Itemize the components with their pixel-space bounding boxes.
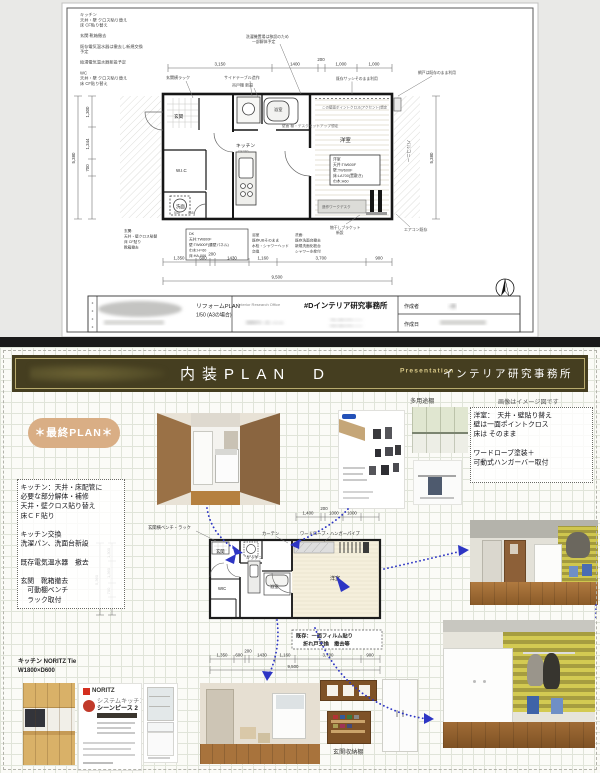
text-line	[83, 742, 135, 744]
wardrobe	[443, 648, 513, 724]
shoe	[333, 715, 338, 719]
svg-text:○田: ○田	[448, 304, 456, 310]
work-line: 可動棚ベンチ	[20, 586, 125, 595]
svg-text:浴室: 浴室	[274, 106, 282, 113]
svg-text:洗面: 洗面	[176, 203, 185, 210]
text-line	[83, 748, 131, 750]
svg-text:1000: 1000	[329, 511, 339, 516]
svg-text:造作ワークデスク: 造作ワークデスク	[322, 204, 351, 209]
svg-text:玄関:: 玄関:	[124, 228, 132, 233]
svg-text:W.I.C: W.I.C	[176, 168, 187, 173]
svg-text:玄関: 玄関	[216, 548, 225, 555]
svg-text:700: 700	[85, 164, 90, 172]
svg-text:1,344: 1,344	[85, 138, 90, 150]
plan-bottom-leaders: 玄関横ベンチ・ラック カーテン ワードローブ・ハンガーパイプ	[148, 524, 361, 543]
cabinet-seams	[412, 407, 468, 453]
svg-text:200: 200	[244, 649, 252, 654]
photo-shoe-rack	[327, 711, 371, 744]
blue-cloth	[569, 566, 578, 577]
towel	[428, 477, 442, 495]
floor-planks	[470, 582, 598, 605]
svg-text:交換: 交換	[252, 249, 260, 254]
company-logo-blurred	[30, 364, 165, 383]
existing-note-box: 既存：一面フィルム貼り 折れ戸交換 撤去等	[292, 630, 382, 649]
svg-text:サイドテーブル造作: サイドテーブル造作	[224, 74, 260, 80]
work-line	[20, 521, 125, 530]
work-line: 天井・壁クロス貼り替え	[20, 502, 125, 511]
text-line	[343, 479, 367, 481]
shoe	[347, 724, 352, 728]
svg-text:洗面:: 洗面:	[295, 232, 303, 237]
svg-text:1,160: 1,160	[280, 653, 292, 658]
floor	[191, 491, 240, 505]
svg-text:200: 200	[317, 57, 325, 62]
svg-text:洋室: 洋室	[330, 575, 340, 582]
blue-cloth	[551, 698, 563, 714]
page-title: 内装PLAN D	[180, 363, 331, 384]
room-note-line: ワードローブ塗装＋	[473, 449, 593, 458]
floor-planks	[200, 744, 320, 764]
handle	[402, 710, 404, 717]
svg-text:1,400: 1,400	[303, 511, 315, 516]
work-line	[20, 549, 125, 558]
shoe	[340, 724, 345, 728]
svg-text:FAX.050-474-○○○○: FAX.050-474-○○○○	[330, 324, 363, 328]
text-line	[83, 762, 113, 764]
shelf-opening	[327, 685, 338, 696]
svg-text:予定: 予定	[80, 48, 88, 55]
svg-text:床 CF貼り替え: 床 CF貼り替え	[80, 22, 108, 29]
svg-text:洋室: 洋室	[340, 136, 351, 144]
dk-spec-box: DK 天井:TW600F 壁:TW600F(腰壁パネル) 巾木:H=60 床:H…	[186, 229, 248, 260]
door	[193, 431, 213, 485]
shoe	[333, 724, 338, 728]
brand-mark	[83, 688, 90, 695]
svg-text:壁面 棚・デスクセットアップ想定: 壁面 棚・デスクセットアップ想定	[282, 123, 339, 128]
svg-text:一部解体予定: 一部解体予定	[252, 39, 275, 44]
shelf-opening	[343, 685, 354, 696]
brand-name: NORITZ	[92, 687, 115, 694]
svg-text:既存UBそのまま: 既存UBそのまま	[252, 238, 280, 243]
svg-text:既存：一面フィルム貼り: 既存：一面フィルム貼り	[296, 632, 353, 640]
svg-text:3,150: 3,150	[215, 62, 227, 67]
shoe	[354, 715, 359, 719]
svg-text:巾木:H=60: 巾木:H=60	[189, 248, 206, 253]
hook-item	[393, 463, 399, 472]
kitchen-spec-line: W1800×D600	[18, 666, 76, 675]
svg-text:1000: 1000	[347, 511, 357, 516]
svg-text:天井:TW600F: 天井:TW600F	[333, 162, 357, 167]
hook-item	[385, 427, 392, 439]
svg-text:1/50 (A3の場合): 1/50 (A3の場合)	[196, 312, 232, 319]
svg-text:TEL.050-474-○○○○: TEL.050-474-○○○○	[330, 318, 362, 322]
hook-item	[369, 466, 376, 475]
svg-text:1,300: 1,300	[85, 106, 90, 118]
photo-kitchen-cabinets	[412, 407, 468, 453]
work-line: キッチン交換	[20, 530, 125, 539]
svg-text:作成者: 作成者	[404, 303, 419, 310]
plan-bottom-dim-labels: 1,400 200 1000 1000 1,350 600 200 1430 1…	[94, 506, 374, 669]
svg-text:天井:TW600F: 天井:TW600F	[189, 237, 212, 242]
svg-text:1430: 1430	[227, 256, 237, 261]
basin	[147, 722, 174, 732]
hook-item	[373, 429, 381, 439]
wardrobe	[534, 544, 562, 586]
interior-plan-sheet: 内装PLAN D Presentation インテリア研究事務所 画像はイメージ…	[0, 347, 600, 773]
photo-wardrobe	[382, 679, 418, 752]
catalog-logo	[342, 414, 356, 419]
left-wall	[157, 413, 191, 505]
text-line	[83, 754, 135, 756]
svg-text:9,500: 9,500	[288, 664, 300, 669]
shoe	[347, 715, 352, 719]
text-line	[343, 467, 365, 469]
reform-plan-sheet: キッチン 天井・壁 クロス貼り替え 床 CF貼り替え 玄関 靴箱撤去 既存電気温…	[0, 0, 600, 340]
svg-text:1,350: 1,350	[174, 256, 186, 261]
svg-text:玄関横ベンチ・ラック: 玄関横ベンチ・ラック	[148, 524, 191, 531]
svg-text:1,350: 1,350	[217, 653, 229, 658]
mirror-cabinet	[147, 687, 174, 721]
blue-cloth	[527, 696, 539, 714]
svg-text:玄関 靴箱撤去: 玄関 靴箱撤去	[80, 32, 106, 39]
door-seam	[399, 680, 400, 751]
svg-text:水栓・シャワーヘッド: 水栓・シャワーヘッド	[252, 243, 289, 248]
handle	[473, 680, 476, 683]
svg-text:545: 545	[174, 211, 180, 215]
bar	[420, 497, 454, 499]
room-note-line: 床は そのまま	[473, 430, 593, 439]
work-line: 必要な部分解体・補修	[20, 493, 125, 502]
counter-line	[412, 432, 468, 434]
svg-text:壁:TW600F(腰壁パネル): 壁:TW600F(腰壁パネル)	[189, 242, 229, 247]
svg-text:物干しブラケット: 物干しブラケット	[330, 225, 361, 230]
svg-text:Interior Research Office: Interior Research Office	[238, 302, 281, 307]
svg-text:キッチン: キッチン	[236, 143, 255, 149]
svg-text:CK240: CK240	[238, 150, 248, 154]
svg-text:吊戸棚 新設: 吊戸棚 新設	[232, 82, 253, 88]
text-line	[97, 732, 135, 734]
svg-text:この壁面ポイントクロス(アクセント)想定: この壁面ポイントクロス(アクセント)想定	[322, 105, 388, 110]
svg-text:天井・壁クロス貼替: 天井・壁クロス貼替	[124, 234, 157, 239]
shelf-line	[149, 696, 170, 697]
caption-line	[148, 757, 170, 759]
svg-text:1430: 1430	[257, 653, 267, 658]
svg-text:600: 600	[199, 256, 207, 261]
svg-text:5,380: 5,380	[71, 152, 76, 164]
svg-text:WC: WC	[80, 70, 87, 75]
catalog-shelf-label: 多用途棚	[410, 396, 434, 405]
svg-text:600: 600	[235, 653, 243, 658]
svg-text:靴箱撤去: 靴箱撤去	[124, 245, 139, 250]
text-line	[343, 491, 373, 493]
shelf-photo	[339, 419, 365, 441]
svg-text:既存電気温水器は撤去し新規交換: 既存電気温水器は撤去し新規交換	[80, 43, 144, 50]
svg-text:相模原市○○区○○3-1-8: 相模原市○○区○○3-1-8	[246, 320, 283, 325]
mirror	[276, 695, 304, 709]
photo-room-render-wardrobe	[443, 620, 595, 748]
photo-kitchen-wood	[23, 683, 75, 765]
photo-noritz-catalog: NORITZ システムキッチン シーンピース 2	[78, 683, 142, 771]
photo-vanity-catalog	[143, 683, 178, 763]
kitchen-spec-note: キッチン NORITZ Tie W1800×D600	[18, 657, 76, 675]
svg-text:新規洗面化粧台: 新規洗面化粧台	[295, 243, 321, 248]
work-line: ラック取付	[20, 596, 125, 605]
hook-item	[395, 445, 401, 455]
svg-text:バルコニー: バルコニー	[406, 140, 411, 163]
svg-text:床:LA700(置敷き): 床:LA700(置敷き)	[333, 173, 363, 178]
blue-cloth	[582, 564, 592, 576]
svg-text:リフォームPLAN: リフォームPLAN	[196, 303, 240, 310]
room-note-line: 洋室： 天井・壁貼り替え	[473, 411, 593, 420]
text-line	[343, 473, 363, 475]
photo-room-render-door	[470, 520, 598, 605]
photo-wall-shelf	[320, 680, 377, 701]
svg-text:給湯電気温水器新設予定: 給湯電気温水器新設予定	[80, 59, 126, 66]
svg-text:WIC: WIC	[218, 586, 226, 591]
work-line: 玄関 靴箱撤去	[20, 577, 125, 586]
svg-text:1,000: 1,000	[369, 62, 381, 67]
jacket	[566, 532, 590, 558]
svg-text:折れ戸交換 撤去等: 折れ戸交換 撤去等	[303, 640, 351, 648]
door	[206, 689, 234, 749]
svg-text:浴室: 浴室	[252, 232, 260, 237]
client-logo-blurred	[98, 301, 182, 317]
room-note-line: 可動式ハンガーバー取付	[473, 458, 593, 467]
door-window	[510, 544, 518, 554]
svg-text:床 CF貼り替え: 床 CF貼り替え	[80, 80, 108, 87]
handle	[483, 680, 486, 683]
svg-text:作成日: 作成日	[404, 321, 419, 328]
svg-text:エアコン既存: エアコン既存	[404, 227, 427, 232]
svg-text:洋室: 洋室	[333, 157, 341, 162]
svg-text:3,700: 3,700	[323, 653, 335, 658]
work-line: 洗濯パン、洗面台新設	[20, 539, 125, 548]
svg-text:キッチン: キッチン	[80, 12, 97, 17]
svg-text:床 CF貼り: 床 CF貼り	[124, 239, 141, 244]
text-line	[97, 722, 135, 724]
svg-text:カーテン: カーテン	[262, 531, 279, 537]
svg-text:巾木:H60: 巾木:H60	[333, 179, 349, 184]
final-plan-badge: ＊最終PLAN＊	[28, 418, 120, 448]
svg-text:1400: 1400	[290, 62, 300, 67]
sale-badge	[83, 700, 95, 712]
right-wall	[240, 413, 280, 505]
shelf-line	[149, 706, 170, 707]
svg-text:900: 900	[366, 653, 374, 658]
svg-text:900: 900	[375, 256, 383, 261]
room-note-line	[473, 439, 593, 448]
header-banner: 内装PLAN D Presentation インテリア研究事務所	[12, 355, 588, 392]
storage-box	[258, 733, 270, 743]
svg-text:1,160: 1,160	[258, 256, 270, 261]
svg-text:9,500: 9,500	[272, 275, 284, 280]
work-line	[20, 568, 125, 577]
svg-text:キッチン: キッチン	[246, 555, 263, 560]
cabinet	[147, 732, 174, 756]
hook-item	[381, 465, 389, 475]
shoe	[340, 715, 345, 719]
work-line: キッチン：天井・床配管に	[20, 483, 125, 492]
svg-text:200: 200	[320, 506, 328, 511]
photo-washroom-render	[200, 683, 320, 764]
svg-text:浴室: 浴室	[270, 583, 278, 590]
jacket	[543, 653, 560, 689]
svg-text:#Dインテリア研究事務所: #Dインテリア研究事務所	[304, 301, 388, 310]
kitchen-spec-line: キッチン NORITZ Tie	[18, 657, 76, 666]
svg-text:シャワー水栓付: シャワー水栓付	[295, 249, 321, 254]
svg-text:既存洗面台撤去: 既存洗面台撤去	[295, 238, 321, 243]
work-line: 既存電気温水器 撤去	[20, 558, 125, 567]
handle	[396, 710, 398, 717]
svg-text:壁:TW600F: 壁:TW600F	[333, 168, 353, 173]
shoe-shelf-label: 玄関収納棚	[333, 747, 363, 756]
work-list-box: キッチン：天井・床配管に 必要な部分解体・補修 天井・壁クロス貼り替え 床ＣＦ貼…	[17, 479, 125, 609]
price-bar	[97, 713, 137, 718]
ceiling	[443, 620, 595, 632]
cabinet-seams	[23, 683, 75, 765]
hook-item	[375, 449, 381, 457]
text-line	[97, 727, 131, 729]
rack-shelf	[331, 730, 365, 733]
hook-item	[385, 447, 393, 456]
plan-bottom-dimensions	[96, 513, 380, 674]
room-note-line: 壁は一面ポイントクロス	[473, 421, 593, 430]
closet-door	[482, 540, 502, 584]
work-line: 床ＣＦ貼り	[20, 511, 125, 520]
plan-bottom: 玄関 WIC キッチン 浴室 洋室	[210, 540, 380, 618]
svg-text:玄関横ラック: 玄関横ラック	[166, 74, 190, 80]
series-name: シーンピース 2	[97, 703, 138, 712]
washing-machine-lid	[215, 449, 237, 455]
svg-text:網戸は既存のまま利用: 網戸は既存のまま利用	[418, 70, 456, 75]
title-block: リフォームPLAN 1/50 (A3の場合) Interior Research…	[88, 296, 520, 332]
image-disclaimer: 画像はイメージ図です	[498, 397, 559, 406]
svg-text:1,000: 1,000	[336, 62, 348, 67]
rack-shelf	[331, 720, 365, 723]
photo-towel-bar	[413, 460, 462, 505]
svg-text:既存サッシそのまま利用: 既存サッシそのまま利用	[336, 76, 378, 81]
svg-text:新設: 新設	[336, 230, 344, 235]
svg-text:565: 565	[188, 211, 194, 215]
svg-text:3,700: 3,700	[316, 256, 328, 261]
svg-text:ワードローブ・ハンガーパイプ: ワードローブ・ハンガーパイプ	[300, 530, 361, 537]
text-line	[343, 497, 369, 499]
ceiling	[191, 413, 240, 427]
svg-text:5,380: 5,380	[429, 152, 434, 164]
photo-entrance-render	[157, 413, 280, 505]
svg-text:DK: DK	[189, 232, 195, 236]
svg-text:200: 200	[208, 252, 216, 257]
svg-text:玄関: 玄関	[174, 113, 184, 120]
floor-planks	[443, 722, 595, 748]
storage-box	[240, 727, 256, 739]
western-room-note-box: 洋室： 天井・壁貼り替え 壁は一面ポイントクロス 床は そのまま ワードローブ塗…	[470, 407, 593, 483]
photo-hook-catalog	[338, 410, 405, 509]
shelf-opening	[359, 685, 370, 696]
office-name: インテリア研究事務所	[443, 366, 573, 381]
jacket	[527, 654, 544, 686]
